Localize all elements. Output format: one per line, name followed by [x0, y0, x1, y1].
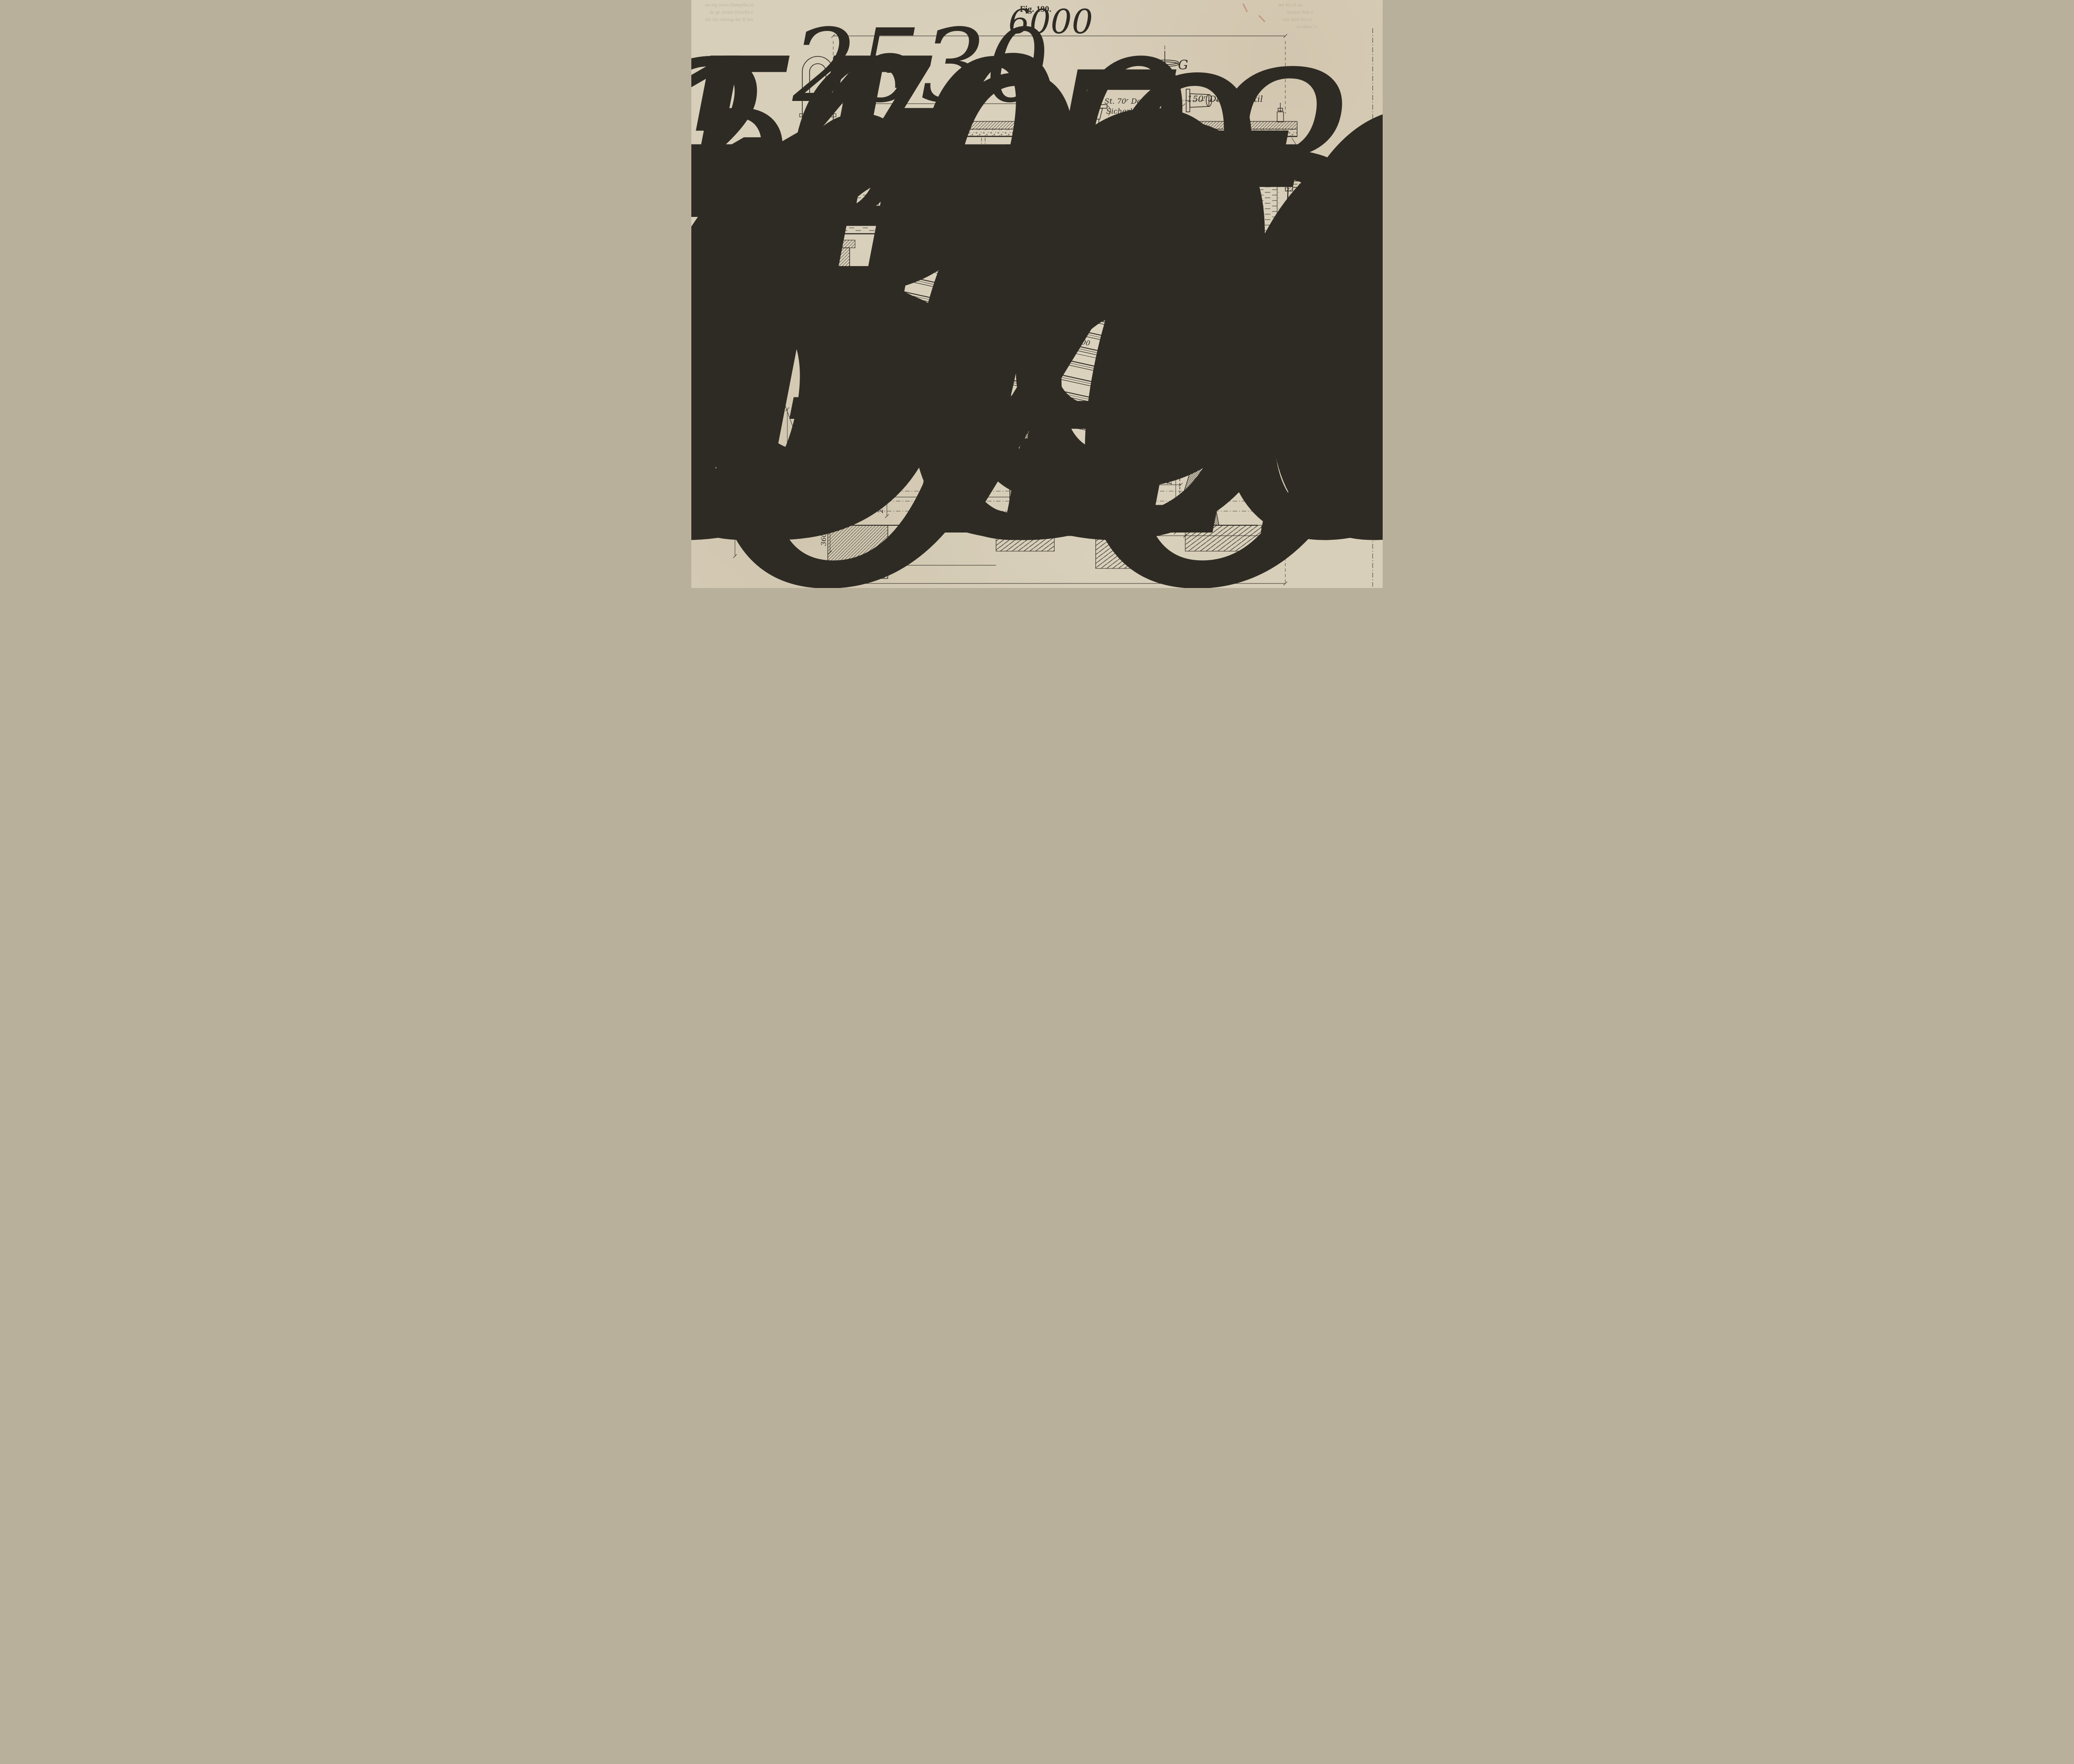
dim-label-d18: 18 — [1130, 236, 1138, 245]
dim-d20_right: 20 — [1257, 369, 1265, 377]
svg-text:der Ke el an: der Ke el an — [1278, 2, 1303, 8]
dim-d20_plate: 20 — [1298, 149, 1306, 156]
dimension-annotations: 6000253057016002404002100380350400770550… — [691, 3, 1383, 588]
dim-label-d1560: 1560 — [1296, 400, 1304, 417]
dim-d20_wall: 20 — [913, 332, 921, 339]
dim-label-d300x400: 300 x 400 — [1011, 145, 1047, 154]
dim-label-d260_c: 260 — [1090, 493, 1098, 507]
dim-label-d950: 950 — [911, 261, 924, 269]
dim-label-d5170: 5170 — [725, 273, 733, 291]
dim-d6b: 6 — [984, 209, 987, 215]
dim-label-d260_ledge: 260 — [830, 233, 842, 240]
dim-label-d720: 720 — [1324, 475, 1333, 488]
dim-label-d4575: 4575 — [750, 353, 759, 371]
dim-label-d360: 360 — [820, 533, 828, 546]
dim-label-d6b: 6 — [984, 209, 987, 215]
dim-label-d1400: 1400 — [1119, 176, 1127, 193]
dim-label-d120x80: 120 x 80 — [1241, 437, 1271, 446]
dim-label-d20_wall: 20 — [913, 332, 921, 339]
dim-label-d6a: 6 — [850, 209, 853, 215]
dim-label-d750: 750 — [876, 462, 885, 475]
dim-label-d250: 250 — [1014, 421, 1022, 435]
dim-label-d1100: 1100 — [1231, 225, 1248, 233]
dim-label-d1475: 1475 — [777, 461, 785, 478]
dim-label-d170: 170 — [982, 158, 991, 171]
dim-label-d350x500: 350 x 500 — [863, 431, 898, 439]
dim-label-d20_plate: 20 — [1298, 149, 1306, 156]
boiler-section-figure: un eig niren Dampfke el de ge amten Heiz… — [691, 0, 1383, 588]
dim-d580: 580 — [1029, 18, 1383, 317]
dim-label-d500_flue_c: 500 — [1090, 462, 1098, 475]
dim-label-d500_flue_r: 500 — [1154, 454, 1163, 467]
dim-d6a: 6 — [850, 209, 853, 215]
svg-text:beiden Seit n: beiden Seit n — [1287, 10, 1314, 15]
dim-label-d20_right: 20 — [1257, 369, 1265, 377]
dim-d300x400: 300 x 400 — [1011, 145, 1047, 154]
dim-d170: 170 — [982, 157, 995, 173]
dim-label-d1450: 1450 — [1165, 467, 1173, 485]
svg-text:de ge amten Heizflä e: de ge amten Heizflä e — [710, 10, 753, 15]
dim-d260_ledge: 260 — [830, 233, 842, 240]
dim-label-d1920: 1920 — [777, 305, 785, 322]
dim-label-d830: 830 — [1017, 458, 1026, 471]
svg-text:un eig niren Dampfke el: un eig niren Dampfke el — [705, 2, 754, 8]
dim-d1100: 1100 — [1231, 225, 1248, 233]
dim-label-d30: 30 — [1163, 365, 1170, 372]
dim-label-d260_left: 260 — [876, 500, 885, 513]
dim-label-d580: 580 — [1029, 18, 1383, 317]
scanned-book-page: un eig niren Dampfke el de ge amten Heiz… — [691, 0, 1383, 588]
dim-d30: 30 — [1163, 365, 1170, 372]
dim-label-d300_mid: 300 — [1185, 416, 1193, 429]
